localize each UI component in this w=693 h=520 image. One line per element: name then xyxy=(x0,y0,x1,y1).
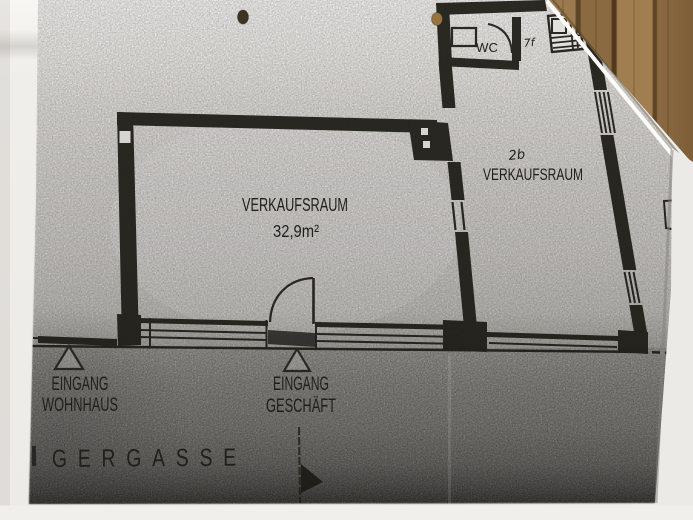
front-block-right xyxy=(618,330,648,354)
scan-vertical-crease xyxy=(448,356,451,504)
right-room-label: VERKAUFSRAUM xyxy=(483,165,583,184)
pier-dot-2 xyxy=(423,141,430,148)
paper-left-edge-shadow xyxy=(0,0,10,520)
photo-of-floor-plan: VERKAUFSRAUM 32,9m² VERKAUFSRAUM 2b WC 7… xyxy=(0,0,693,520)
punched-hole-left xyxy=(238,10,249,24)
punched-hole-right xyxy=(432,13,443,26)
street-name-label: GERGASSE xyxy=(52,444,247,473)
entrance-house-label-line1: EINGANG xyxy=(52,374,109,395)
wc-right-jamb xyxy=(512,17,521,61)
entrance-shop-label-line2: GESCHÄFT xyxy=(266,396,336,417)
wc-label: WC xyxy=(476,40,498,55)
main-room-label: VERKAUFSRAUM xyxy=(242,195,348,215)
wall-notch xyxy=(120,131,131,143)
entrance-house-label-line2: WOHNHAUS xyxy=(42,395,118,416)
pier-block xyxy=(408,120,453,161)
entrance-shop-label-line1: EINGANG xyxy=(273,374,329,395)
handwritten-note-2b: 2b xyxy=(508,147,526,164)
paper-bottom-margin xyxy=(0,506,693,520)
main-room-area: 32,9m² xyxy=(273,221,319,241)
pier-dot-1 xyxy=(421,128,428,135)
street-letter-fragment xyxy=(32,446,36,466)
scanned-plan xyxy=(0,0,679,505)
